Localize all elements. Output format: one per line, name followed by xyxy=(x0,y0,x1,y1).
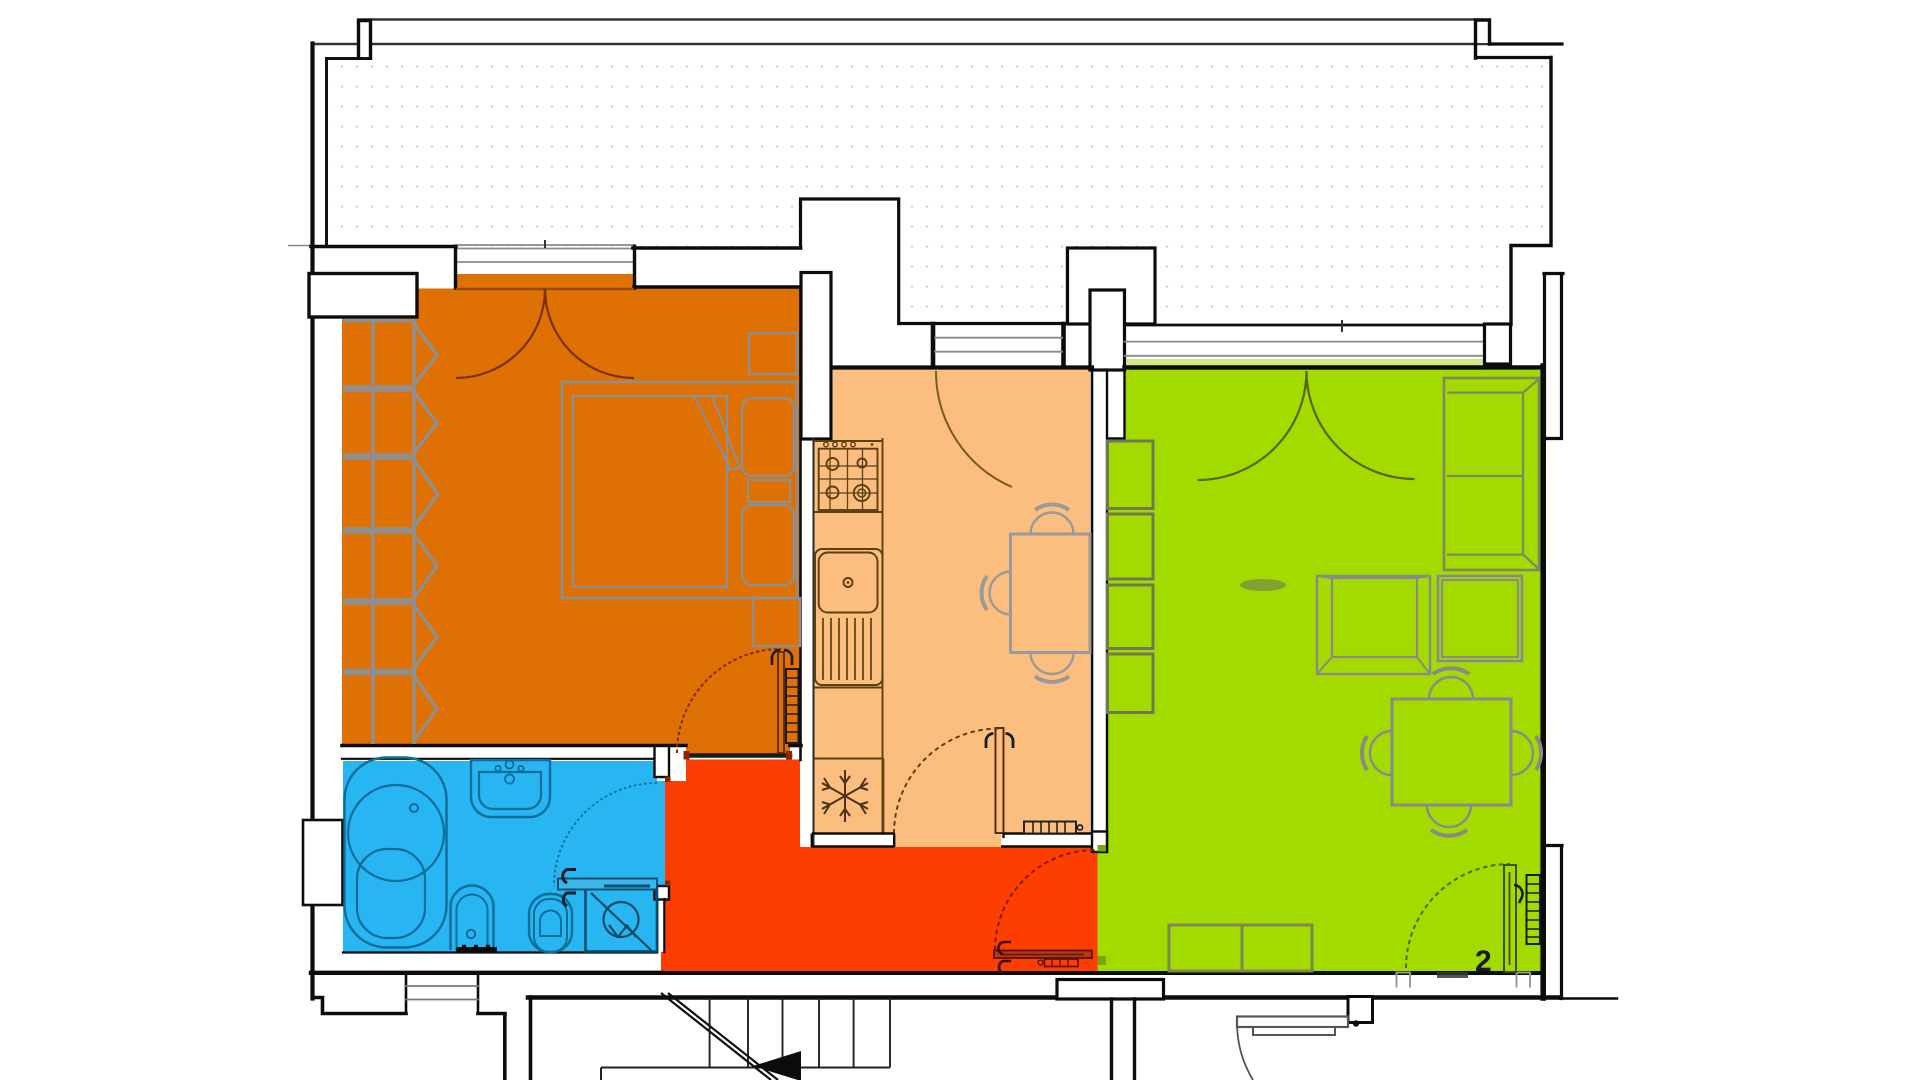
svg-text:2: 2 xyxy=(1475,945,1492,978)
